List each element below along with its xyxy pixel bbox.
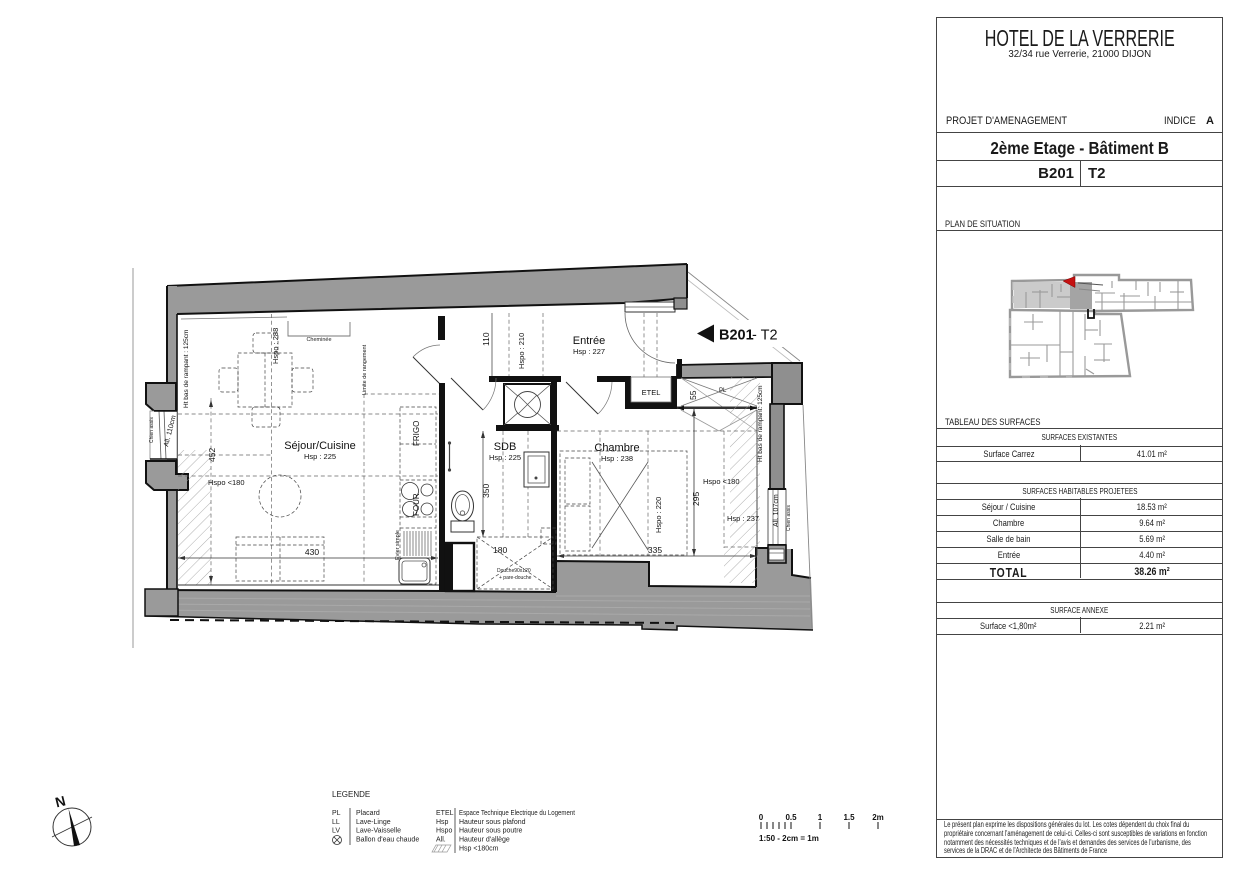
svg-text:Chambre: Chambre (594, 442, 639, 454)
svg-text:110: 110 (481, 332, 491, 346)
svg-text:Hsp : 238: Hsp : 238 (601, 454, 633, 463)
svg-text:Evier simple: Evier simple (395, 530, 401, 560)
svg-text:430: 430 (305, 547, 319, 557)
svg-text:Hspo <180: Hspo <180 (703, 477, 740, 486)
svg-text:+ pare-douche: + pare-douche (499, 575, 532, 581)
svg-text:Hspo <180: Hspo <180 (208, 478, 245, 487)
svg-text:Entrée: Entrée (573, 335, 605, 347)
svg-text:Hauteur sous plafond: Hauteur sous plafond (459, 819, 526, 826)
svg-text:Hsp : 225: Hsp : 225 (489, 453, 521, 462)
svg-text:0: 0 (759, 813, 764, 822)
svg-text:Cheminée: Cheminée (306, 337, 331, 343)
svg-text:Espace Technique Electrique du: Espace Technique Electrique du Logement (459, 810, 575, 817)
svg-text:1.5: 1.5 (843, 813, 855, 822)
svg-text:Lave-Linge: Lave-Linge (356, 819, 391, 826)
svg-text:Hspo : 220: Hspo : 220 (654, 497, 663, 533)
svg-text:LL: LL (332, 819, 340, 826)
svg-text:295: 295 (691, 492, 701, 506)
svg-text:Ht bas de rampant : 125cm: Ht bas de rampant : 125cm (183, 330, 190, 408)
svg-text:PL: PL (332, 810, 341, 817)
svg-text:Hsp : 225: Hsp : 225 (304, 452, 336, 461)
svg-text:55: 55 (688, 390, 698, 400)
svg-text:N: N (54, 792, 68, 810)
svg-text:Hspo : 210: Hspo : 210 (517, 333, 526, 369)
svg-text:Ballon d'eau chaude: Ballon d'eau chaude (356, 837, 419, 844)
svg-text:Hauteur sous poutre: Hauteur sous poutre (459, 828, 523, 835)
svg-text:350: 350 (481, 484, 491, 498)
svg-text:Chien assis: Chien assis (786, 505, 792, 531)
svg-text:Limite de rangement: Limite de rangement (362, 344, 368, 395)
svg-text:Hspo : 288: Hspo : 288 (271, 328, 280, 364)
svg-text:335: 335 (648, 545, 662, 555)
svg-text:1:50 - 2cm = 1m: 1:50 - 2cm = 1m (759, 834, 819, 843)
svg-text:LEGENDE: LEGENDE (332, 790, 370, 799)
svg-text:Hsp: Hsp (436, 819, 449, 826)
svg-text:Placard: Placard (356, 810, 380, 817)
svg-text:SDB: SDB (494, 441, 517, 453)
svg-text:Hsp <180cm: Hsp <180cm (459, 846, 499, 853)
svg-text:Hsp : 227: Hsp : 227 (573, 347, 605, 356)
svg-text:LV: LV (332, 828, 340, 835)
svg-text:Douche90x120: Douche90x120 (497, 568, 531, 574)
svg-text:2m: 2m (872, 813, 884, 822)
svg-text:Séjour/Cuisine: Séjour/Cuisine (284, 440, 356, 452)
svg-text:- T2: - T2 (752, 328, 778, 344)
svg-text:180: 180 (493, 545, 507, 555)
svg-text:1: 1 (818, 813, 823, 822)
svg-text:PL: PL (719, 388, 727, 394)
svg-text:Hspo: Hspo (436, 828, 452, 835)
svg-text:B201: B201 (719, 328, 754, 344)
svg-text:452: 452 (207, 448, 217, 462)
svg-text:ETEL: ETEL (436, 810, 454, 817)
svg-text:All. 107cm: All. 107cm (773, 494, 780, 527)
svg-text:Lave-Vaisselle: Lave-Vaisselle (356, 828, 401, 835)
svg-text:Chien assis: Chien assis (149, 417, 155, 443)
svg-text:Hauteur d'allège: Hauteur d'allège (459, 837, 510, 844)
svg-text:Hsp : 237: Hsp : 237 (727, 514, 759, 523)
svg-text:Ht bas de rampant: 125cm: Ht bas de rampant: 125cm (757, 385, 764, 462)
svg-text:All.: All. (436, 837, 446, 844)
svg-text:FRIGO: FRIGO (412, 421, 421, 446)
svg-text:ETEL: ETEL (642, 388, 661, 397)
svg-text:0.5: 0.5 (785, 813, 797, 822)
svg-text:FOUR: FOUR (412, 493, 421, 516)
